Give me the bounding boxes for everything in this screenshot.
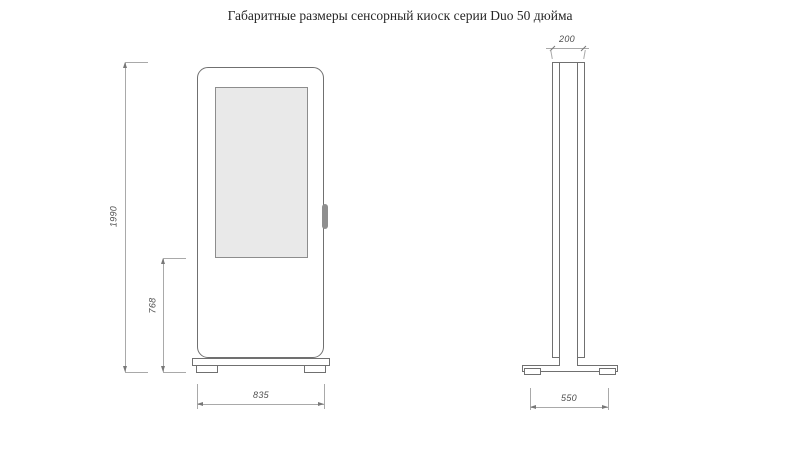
dimension-line: [197, 404, 324, 405]
extension-line: [163, 372, 186, 373]
extension-line: [550, 50, 553, 59]
dimension-line: [163, 258, 164, 372]
extension-line: [125, 372, 148, 373]
dim-depth-label: 200: [547, 34, 587, 45]
extension-line: [163, 258, 186, 259]
kiosk-handle: [322, 204, 328, 229]
dim-height-label: 1990: [109, 197, 120, 237]
technical-drawing: Габаритные размеры сенсорный киоск серии…: [0, 0, 800, 450]
dim-screen-height-label: 768: [148, 286, 159, 326]
kiosk-foot-right-front: [304, 365, 326, 373]
dim-arrow-left: [197, 402, 203, 406]
extension-line: [324, 384, 325, 409]
kiosk-column-stem: [559, 357, 578, 366]
extension-line: [125, 62, 148, 63]
kiosk-body-side: [552, 62, 585, 358]
extension-line: [583, 50, 586, 59]
dim-base-depth-label: 550: [549, 393, 589, 404]
kiosk-foot-left-side: [524, 368, 541, 375]
dim-arrow-right: [602, 405, 608, 409]
extension-line: [608, 388, 609, 410]
dimension-line: [530, 407, 608, 408]
kiosk-screen: [215, 87, 308, 258]
panel-seam-front: [559, 63, 560, 357]
dim-arrow-left: [530, 405, 536, 409]
dim-arrow-right: [318, 402, 324, 406]
panel-seam-back: [577, 63, 578, 357]
dim-width-label: 835: [241, 390, 281, 401]
kiosk-foot-right-side: [599, 368, 616, 375]
dimension-line: [125, 62, 126, 372]
kiosk-foot-left-front: [196, 365, 218, 373]
page-title: Габаритные размеры сенсорный киоск серии…: [0, 8, 800, 24]
